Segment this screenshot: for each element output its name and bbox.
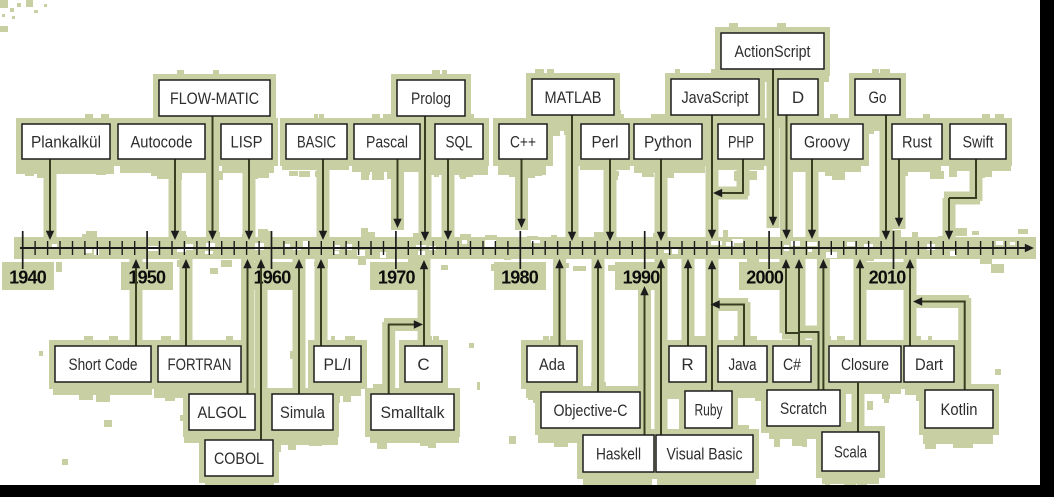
svg-text:SQL: SQL (446, 133, 473, 152)
svg-text:1990: 1990 (623, 268, 661, 288)
svg-text:Ada: Ada (539, 355, 565, 374)
svg-text:PHP: PHP (728, 133, 754, 152)
svg-text:Objective-C: Objective-C (554, 401, 628, 420)
svg-text:Rust: Rust (902, 133, 932, 152)
svg-text:Prolog: Prolog (411, 89, 451, 108)
svg-text:FLOW-MATIC: FLOW-MATIC (170, 89, 259, 108)
svg-text:Perl: Perl (592, 133, 619, 152)
svg-text:Plankalkül: Plankalkül (31, 133, 101, 152)
svg-text:Python: Python (644, 133, 692, 152)
svg-text:Scala: Scala (834, 443, 867, 462)
svg-text:1960: 1960 (254, 268, 292, 288)
svg-text:JavaScript: JavaScript (682, 88, 749, 107)
svg-text:BASIC: BASIC (297, 133, 336, 152)
svg-text:C++: C++ (510, 133, 536, 152)
svg-text:1950: 1950 (128, 268, 166, 288)
svg-text:Haskell: Haskell (596, 445, 641, 464)
svg-text:PL/I: PL/I (324, 355, 352, 374)
svg-text:ActionScript: ActionScript (735, 42, 811, 61)
svg-text:Short Code: Short Code (69, 355, 138, 374)
svg-text:FORTRAN: FORTRAN (168, 355, 232, 374)
svg-text:Go: Go (869, 88, 887, 107)
svg-text:Dart: Dart (915, 355, 943, 374)
svg-text:Pascal: Pascal (366, 133, 408, 152)
svg-text:Scratch: Scratch (780, 399, 827, 418)
svg-text:LISP: LISP (231, 133, 263, 152)
svg-text:COBOL: COBOL (214, 449, 264, 468)
svg-text:Autocode: Autocode (131, 133, 193, 152)
svg-text:D: D (792, 88, 804, 107)
svg-text:1940: 1940 (9, 268, 47, 288)
svg-text:Swift: Swift (963, 133, 994, 152)
svg-text:2000: 2000 (746, 268, 784, 288)
svg-text:C: C (417, 355, 429, 374)
svg-text:Groovy: Groovy (804, 133, 850, 152)
svg-text:2010: 2010 (869, 268, 907, 288)
svg-text:Kotlin: Kotlin (941, 400, 978, 419)
svg-text:Visual Basic: Visual Basic (667, 445, 743, 464)
svg-text:Ruby: Ruby (695, 401, 723, 420)
svg-text:Closure: Closure (841, 355, 889, 374)
svg-text:1970: 1970 (378, 268, 416, 288)
svg-text:MATLAB: MATLAB (545, 88, 602, 107)
svg-text:C#: C# (783, 355, 801, 374)
svg-text:Simula: Simula (280, 403, 325, 422)
svg-text:ALGOL: ALGOL (198, 403, 247, 422)
svg-text:Smalltalk: Smalltalk (381, 403, 445, 422)
svg-text:R: R (681, 355, 693, 374)
svg-text:Java: Java (729, 355, 757, 374)
svg-text:1980: 1980 (501, 268, 539, 288)
